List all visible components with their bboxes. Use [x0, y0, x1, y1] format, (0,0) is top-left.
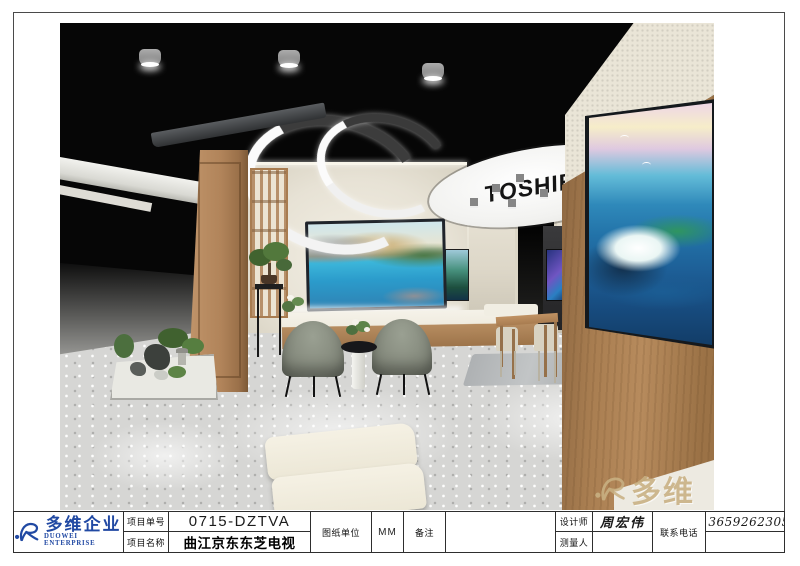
remarks-label: 备注: [404, 512, 446, 552]
lounge-armchair: [372, 319, 432, 397]
rock: [144, 344, 170, 370]
company-logo: 多维企业 DUOWEI ENTERPRISE: [14, 512, 124, 552]
armchair-body: [372, 319, 432, 375]
cylinder-downlight: [139, 49, 161, 65]
cube-downlight: [516, 174, 524, 184]
bench-plant: [280, 295, 306, 315]
chair-leg: [424, 374, 430, 395]
duowei-logo-mark-icon: [594, 474, 628, 504]
white-flowers: [364, 327, 370, 332]
armchair-body: [282, 321, 344, 377]
chair-leg: [514, 351, 516, 375]
white-flowers: [352, 319, 359, 325]
phone-value: 13659262305: [706, 512, 784, 532]
company-name-en: DUOWEI ENTERPRISE: [44, 534, 123, 548]
rock-garden: [110, 326, 218, 400]
surveyor-value: [593, 532, 653, 552]
cube-downlight: [470, 198, 478, 208]
designer-label: 设计师: [556, 512, 593, 532]
chair-leg: [538, 351, 540, 381]
drawing-unit-value: MM: [372, 512, 404, 552]
bamboo-shrub: [114, 334, 134, 358]
duowei-logo-mark-icon: [14, 519, 41, 545]
rock: [130, 362, 146, 376]
bonsai-pot: [261, 275, 277, 284]
phone-value-row2: [706, 532, 784, 552]
phone-label: 联系电话: [653, 512, 706, 552]
project-name-value: 曲江京东东芝电视: [169, 532, 311, 552]
cylinder-downlight: [278, 50, 300, 66]
pebble: [154, 370, 168, 380]
side-table-base: [352, 351, 365, 389]
bonsai-foliage: [276, 259, 292, 271]
surveyor-label: 测量人: [556, 532, 593, 552]
ocean-wave-artwork: [589, 103, 712, 345]
stand-leg: [257, 289, 259, 357]
showroom-rendering: TOSHIBA: [60, 23, 714, 510]
cube-downlight: [540, 189, 548, 199]
chair-leg: [403, 374, 405, 395]
seagull: [620, 135, 629, 141]
chair-leg: [285, 376, 291, 397]
small-display-screen: [445, 249, 469, 301]
cube-downlight: [508, 199, 516, 209]
designer-value: 周宏伟: [593, 512, 653, 532]
title-block: 多维企业 DUOWEI ENTERPRISE 项目单号 0715-DZTVA 项…: [13, 511, 785, 553]
drawing-unit-label: 图纸单位: [311, 512, 372, 552]
chair-leg: [313, 376, 315, 397]
stone-lantern-body: [178, 353, 186, 365]
lounge-armchair: [282, 321, 344, 399]
chair-leg: [376, 374, 382, 395]
project-no-label: 项目单号: [124, 512, 169, 532]
chair-leg: [334, 376, 340, 397]
table-plant: [344, 319, 374, 343]
chair-leg: [500, 351, 502, 377]
project-name-label: 项目名称: [124, 532, 169, 552]
duowei-watermark: 多维: [594, 466, 754, 512]
company-name-cn: 多维企业: [45, 516, 121, 533]
seagull: [642, 162, 651, 168]
watermark-text: 多维: [631, 467, 695, 511]
floor-light-pool: [90, 421, 240, 491]
remarks-value: [446, 512, 556, 552]
moss: [168, 366, 186, 378]
table-leg: [544, 325, 547, 377]
cylinder-downlight: [422, 63, 444, 79]
project-no-value: 0715-DZTVA: [169, 512, 311, 532]
cube-downlight: [492, 184, 500, 194]
white-flowers: [287, 295, 294, 300]
chair-leg: [554, 351, 556, 383]
drawing-sheet: TOSHIBA 多维: [0, 0, 800, 566]
